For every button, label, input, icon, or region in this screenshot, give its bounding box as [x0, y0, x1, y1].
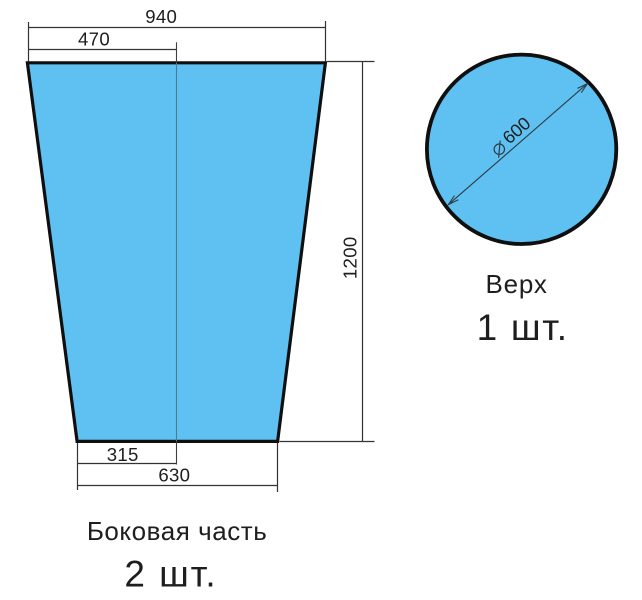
- svg-text:Верх: Верх: [486, 269, 548, 299]
- svg-text:1 шт.: 1 шт.: [477, 307, 569, 348]
- svg-text:1200: 1200: [340, 237, 361, 280]
- svg-text:630: 630: [158, 465, 190, 486]
- svg-text:470: 470: [78, 29, 110, 50]
- svg-text:315: 315: [107, 444, 139, 465]
- svg-text:Боковая часть: Боковая часть: [87, 516, 268, 546]
- svg-text:2 шт.: 2 шт.: [124, 553, 217, 594]
- svg-text:940: 940: [145, 6, 177, 27]
